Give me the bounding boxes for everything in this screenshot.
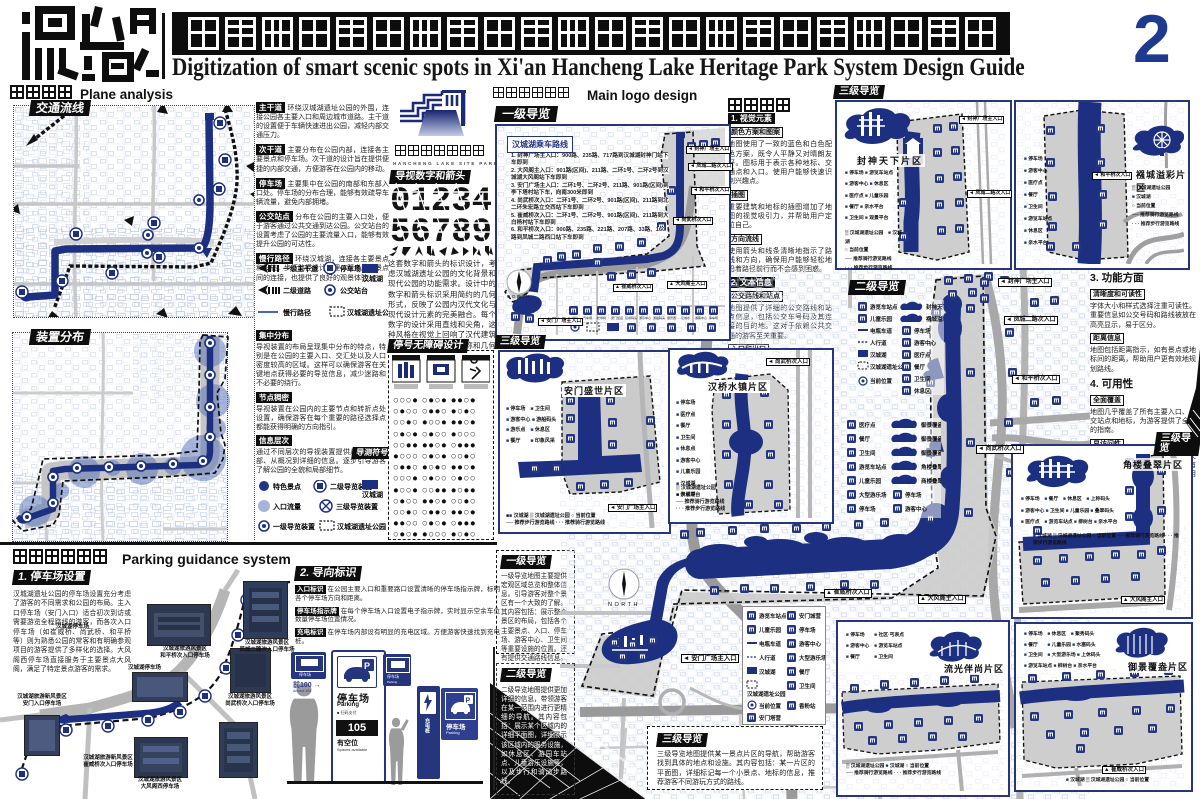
svg-text:卫生间: 卫生间 xyxy=(799,682,816,690)
svg-text:儿童乐园: 儿童乐园 xyxy=(758,626,782,634)
svg-text:三级导览装置: 三级导览装置 xyxy=(336,502,378,511)
svg-text:餐厅: 餐厅 xyxy=(858,435,871,443)
svg-text:人行道: 人行道 xyxy=(759,654,776,662)
svg-text:NORTH: NORTH xyxy=(507,294,531,299)
svg-text:游船码头: 游船码头 xyxy=(653,315,665,320)
svg-text:卫生间: 卫生间 xyxy=(859,449,876,457)
svg-text:儿童乐园: 儿童乐园 xyxy=(869,315,893,323)
svg-text:停车场: 停车场 xyxy=(340,264,361,273)
svg-text:医疗点: 医疗点 xyxy=(859,421,876,429)
svg-text:入口流量: 入口流量 xyxy=(272,502,301,511)
svg-text:二级道路: 二级道路 xyxy=(283,286,312,295)
svg-text:安门塔营: 安门塔营 xyxy=(759,714,782,722)
svg-text:公交站台: 公交站台 xyxy=(340,286,368,295)
svg-text:停车场: 停车场 xyxy=(799,626,816,634)
svg-text:汉城湖: 汉城湖 xyxy=(362,274,383,283)
svg-text:一级导览装置: 一级导览装置 xyxy=(273,522,315,531)
svg-text:香粉站: 香粉站 xyxy=(799,702,816,710)
svg-text:NORTH: NORTH xyxy=(608,602,640,608)
svg-text:汽车场: 汽车场 xyxy=(583,315,592,320)
svg-text:游客中心: 游客中心 xyxy=(799,640,822,648)
svg-text:松琴树: 松琴树 xyxy=(597,315,606,320)
svg-text:当前位置: 当前位置 xyxy=(870,377,893,385)
svg-text:商楼叠翠: 商楼叠翠 xyxy=(921,477,941,485)
svg-text:停车场: 停车场 xyxy=(709,315,718,320)
svg-text:汉水码头: 汉水码头 xyxy=(625,315,637,320)
svg-text:角楼叠翠: 角楼叠翠 xyxy=(921,463,941,471)
svg-text:安门饭店: 安门饭店 xyxy=(611,315,623,320)
svg-text:御景覆盎: 御景覆盎 xyxy=(920,435,941,443)
svg-text:大型游乐场: 大型游乐场 xyxy=(859,491,887,499)
svg-text:餐厅: 餐厅 xyxy=(913,363,926,371)
svg-text:P: P xyxy=(466,698,471,705)
svg-text:游览车站点: 游览车站点 xyxy=(870,303,898,311)
svg-text:电瓶车道: 电瓶车道 xyxy=(870,327,893,335)
svg-text:P: P xyxy=(364,661,370,671)
svg-text:大型游乐场: 大型游乐场 xyxy=(799,654,825,662)
svg-text:餐厅: 餐厅 xyxy=(798,668,811,676)
svg-text:御景覆盎: 御景覆盎 xyxy=(920,421,941,429)
svg-text:当前位置: 当前位置 xyxy=(759,702,782,710)
svg-text:汉城湖: 汉城湖 xyxy=(759,668,776,676)
svg-text:安门城营: 安门城营 xyxy=(799,612,822,620)
svg-text:人行道: 人行道 xyxy=(870,339,887,347)
svg-text:游客中心: 游客中心 xyxy=(695,315,707,320)
svg-text:医疗点: 医疗点 xyxy=(914,351,931,359)
svg-text:游览车站点: 游览车站点 xyxy=(859,463,887,471)
svg-text:慢行路径: 慢行路径 xyxy=(283,308,311,317)
svg-text:一级主干道: 一级主干道 xyxy=(283,264,318,273)
svg-text:停车场: 停车场 xyxy=(905,491,922,499)
svg-text:襁城溢彩: 襁城溢彩 xyxy=(925,315,944,323)
svg-text:御景覆盎: 御景覆盎 xyxy=(920,449,941,457)
svg-text:休息区: 休息区 xyxy=(913,387,931,395)
svg-text:封神天下: 封神天下 xyxy=(926,303,944,311)
svg-text:游客中心: 游客中心 xyxy=(914,339,937,347)
svg-text:汉城湖遗址公园: 汉城湖遗址公园 xyxy=(747,690,786,698)
svg-text:儿童乐园: 儿童乐园 xyxy=(858,477,882,485)
svg-text:御景阁: 御景阁 xyxy=(667,315,676,320)
svg-text:停车场: 停车场 xyxy=(859,505,876,513)
svg-text:卫生间: 卫生间 xyxy=(914,375,931,383)
svg-text:汉城湖: 汉城湖 xyxy=(362,490,383,499)
svg-text:汉城湖: 汉城湖 xyxy=(870,351,887,359)
svg-text:汉城湖遗址公园: 汉城湖遗址公园 xyxy=(337,522,386,531)
svg-text:汉城水: 汉城水 xyxy=(681,315,690,320)
svg-text:停车场: 停车场 xyxy=(914,327,931,335)
svg-text:游示中心: 游示中心 xyxy=(639,315,651,320)
svg-text:特色景点: 特色景点 xyxy=(273,482,301,491)
svg-text:游客中心: 游客中心 xyxy=(905,505,928,513)
svg-text:游览车站点: 游览车站点 xyxy=(759,612,787,620)
svg-text:汉城湖遗址公园: 汉城湖遗址公园 xyxy=(347,308,388,317)
svg-text:电瓶车道: 电瓶车道 xyxy=(759,640,782,648)
